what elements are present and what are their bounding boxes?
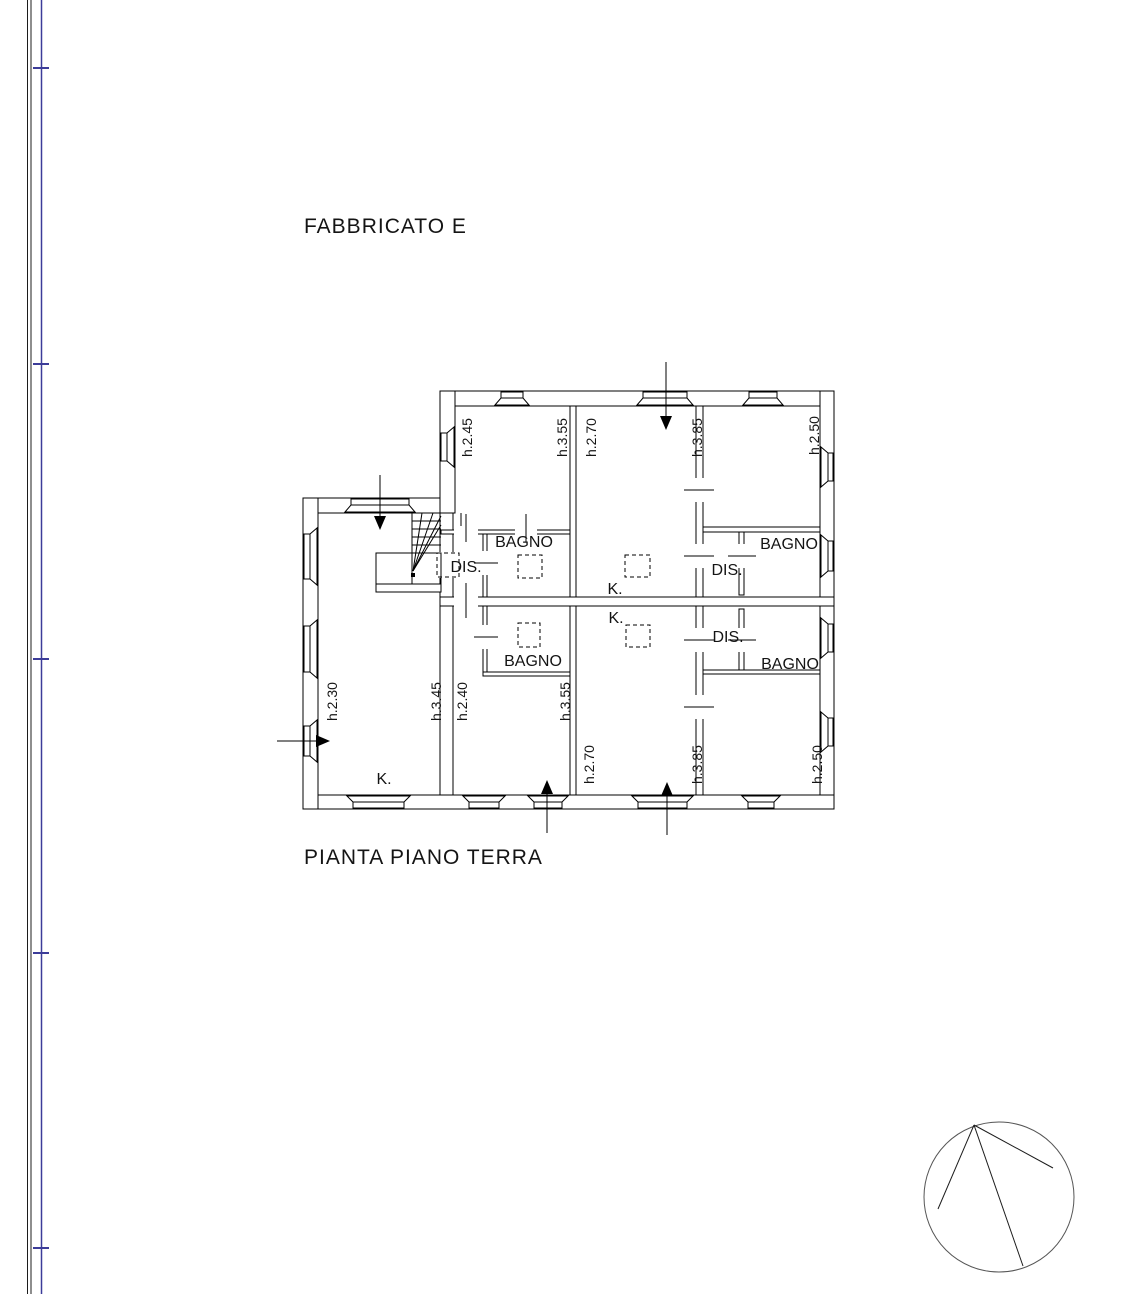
room-label-dis-ne: DIS. bbox=[711, 562, 742, 579]
height-label-nw-left: h.2.45 bbox=[459, 418, 475, 457]
height-label-nw-right: h.3.55 bbox=[554, 418, 570, 457]
room-label-bagno-ne: BAGNO bbox=[760, 536, 818, 553]
height-label-n-right: h.3.85 bbox=[689, 418, 705, 457]
building-title: FABBRICATO E bbox=[304, 215, 467, 238]
height-label-s-left: h.2.70 bbox=[581, 745, 597, 784]
room-label-k-wing: K. bbox=[376, 771, 391, 788]
room-label-dis-w: DIS. bbox=[450, 559, 481, 576]
staircase bbox=[376, 513, 441, 592]
floor-plan-drawing: FABBRICATO E PIANTA PIANO TERRA bbox=[0, 0, 1144, 1294]
height-label-wing-left: h.2.30 bbox=[324, 682, 340, 721]
height-label-ne: h.2.50 bbox=[806, 416, 822, 455]
north-compass bbox=[924, 1122, 1074, 1272]
height-label-n-left: h.2.70 bbox=[583, 418, 599, 457]
height-label-sw-right: h.3.55 bbox=[557, 682, 573, 721]
room-label-k-south: K. bbox=[608, 610, 623, 627]
height-label-s-right: h.3.85 bbox=[689, 745, 705, 784]
height-label-se: h.2.50 bbox=[809, 745, 825, 784]
room-label-dis-e: DIS. bbox=[712, 629, 743, 646]
floor-plan: BAGNO DIS. BAGNO K. K. K. DIS. BAGNO DIS… bbox=[277, 362, 834, 835]
room-label-bagno-w: BAGNO bbox=[504, 653, 562, 670]
drawing-sheet: FABBRICATO E PIANTA PIANO TERRA bbox=[0, 0, 1144, 1294]
stair-newel-dot bbox=[411, 573, 415, 577]
sheet-frame bbox=[28, 0, 50, 1294]
plan-caption: PIANTA PIANO TERRA bbox=[304, 846, 543, 869]
height-label-wing-right: h.3.45 bbox=[428, 682, 444, 721]
room-label-bagno-se: BAGNO bbox=[761, 656, 819, 673]
height-label-sw-left: h.2.40 bbox=[454, 682, 470, 721]
room-label-k-north: K. bbox=[607, 581, 622, 598]
room-label-bagno-nw: BAGNO bbox=[495, 534, 553, 551]
